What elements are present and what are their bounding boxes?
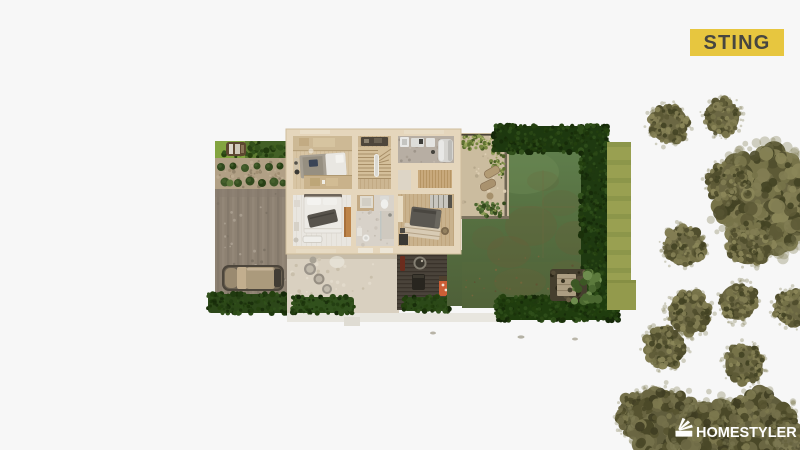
svg-text:STING: STING xyxy=(703,32,770,54)
svg-text:HOMESTYLER: HOMESTYLER xyxy=(696,425,797,441)
